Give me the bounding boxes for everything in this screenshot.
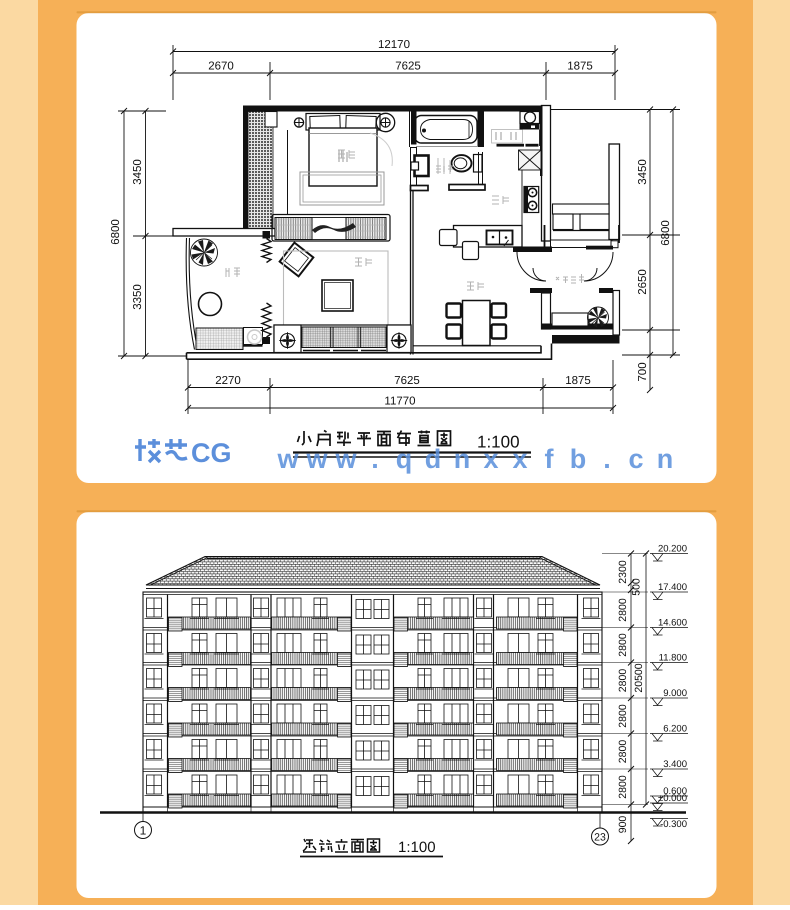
svg-text:x: x	[512, 444, 527, 474]
svg-text:11770: 11770	[384, 396, 415, 408]
svg-text:500: 500	[631, 578, 643, 596]
svg-text:d: d	[425, 444, 442, 474]
svg-text:3.400: 3.400	[663, 759, 687, 770]
svg-text:q: q	[396, 444, 413, 474]
svg-text:2800: 2800	[617, 704, 629, 728]
svg-text:-0.300: -0.300	[660, 819, 687, 830]
svg-text:b: b	[570, 444, 587, 474]
svg-text:2800: 2800	[617, 669, 629, 693]
svg-text:w: w	[276, 444, 299, 474]
svg-text:12170: 12170	[378, 39, 410, 51]
svg-text:11.800: 11.800	[659, 653, 687, 664]
svg-text:6800: 6800	[110, 219, 122, 245]
svg-text:.: .	[603, 444, 611, 474]
svg-text:3450: 3450	[132, 159, 144, 185]
svg-text:20.200: 20.200	[658, 544, 687, 555]
svg-text:1: 1	[140, 824, 147, 838]
svg-text:f: f	[545, 444, 555, 474]
svg-text:2800: 2800	[617, 775, 629, 799]
svg-text:2670: 2670	[208, 61, 234, 73]
svg-text:2800: 2800	[617, 633, 629, 657]
svg-text:14.600: 14.600	[658, 618, 687, 629]
svg-text:1:100: 1:100	[398, 839, 436, 856]
svg-text:700: 700	[637, 362, 649, 381]
svg-text:2650: 2650	[637, 269, 649, 295]
svg-text:2300: 2300	[617, 560, 629, 584]
svg-text:n: n	[454, 444, 471, 474]
svg-text:w: w	[334, 444, 357, 474]
svg-text:7625: 7625	[395, 61, 421, 73]
svg-text:3450: 3450	[637, 159, 649, 185]
svg-text:3350: 3350	[132, 284, 144, 310]
svg-text:900: 900	[617, 816, 629, 834]
svg-text:20500: 20500	[633, 663, 645, 692]
svg-text:n: n	[657, 444, 674, 474]
svg-text:.: .	[371, 444, 379, 474]
svg-text:1875: 1875	[565, 375, 591, 387]
svg-text:17.400: 17.400	[658, 582, 687, 593]
svg-text:c: c	[628, 444, 643, 474]
svg-text:23: 23	[594, 832, 606, 844]
svg-text:2800: 2800	[617, 598, 629, 622]
svg-text:7625: 7625	[394, 375, 420, 387]
svg-text:2270: 2270	[215, 375, 241, 387]
svg-text:2800: 2800	[617, 740, 629, 764]
svg-text:w: w	[305, 444, 328, 474]
svg-text:1875: 1875	[567, 61, 593, 73]
svg-text:x: x	[483, 444, 498, 474]
svg-text:CG: CG	[191, 438, 232, 468]
svg-text:6.200: 6.200	[663, 724, 687, 735]
svg-text:6800: 6800	[660, 220, 672, 246]
svg-text:±0.000: ±0.000	[658, 793, 687, 804]
svg-text:9.000: 9.000	[663, 688, 687, 699]
